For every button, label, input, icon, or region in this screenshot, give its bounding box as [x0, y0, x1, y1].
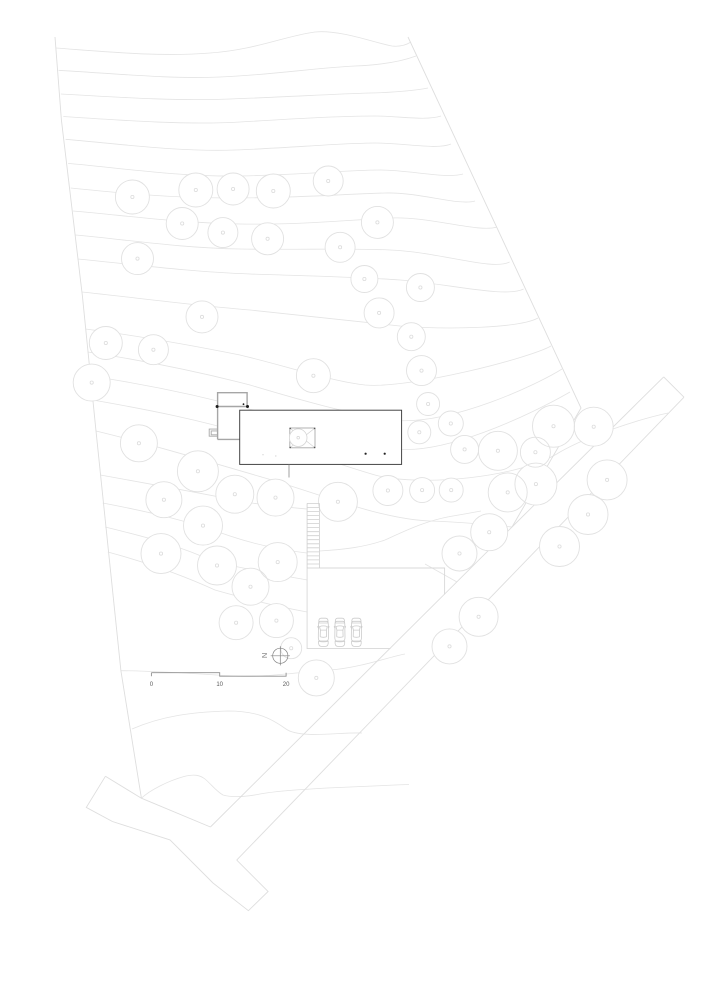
svg-text:10: 10	[216, 682, 223, 688]
svg-text:20: 20	[283, 682, 290, 688]
svg-text:N: N	[260, 653, 269, 658]
